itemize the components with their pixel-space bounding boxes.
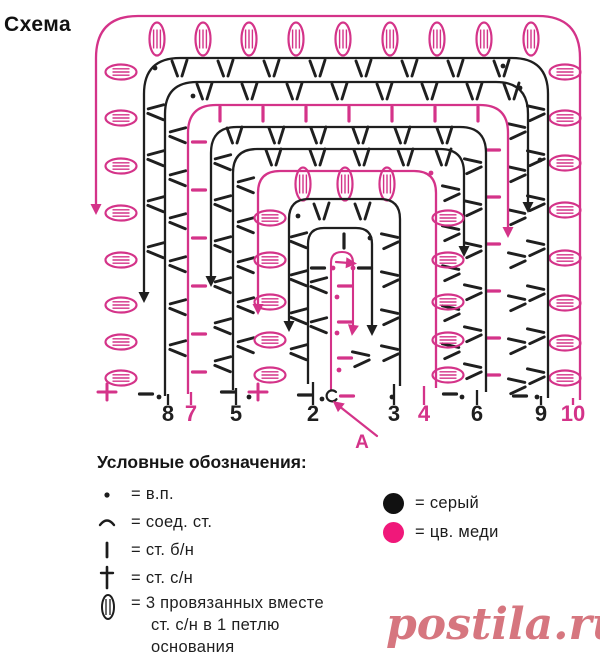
round-number-8: 8 (162, 401, 174, 426)
cluster-icon (97, 592, 131, 622)
round-number-4: 4 (418, 401, 431, 426)
legend: Условные обозначения: = в.п. = соед. ст.… (97, 452, 397, 658)
legend-item-cluster: = 3 провязанных вместе ст. с/н в 1 петлю… (97, 592, 397, 658)
legend-item-label: = ст. с/н (131, 569, 193, 588)
copper-color-dot (383, 522, 404, 543)
start-label-a: А (329, 397, 377, 453)
double-crochet-icon (97, 565, 131, 591)
round-number-9: 9 (535, 401, 547, 426)
legend-item-label: = в.п. (131, 485, 174, 504)
chain-dot-icon (97, 481, 131, 507)
single-crochet-icon (97, 537, 131, 563)
round-number-10: 10 (561, 401, 585, 426)
round-number-2: 2 (307, 401, 319, 426)
slip-stitch-mark (327, 390, 337, 401)
color-key: = серый = цв. меди (383, 489, 499, 547)
legend-item-double-crochet: = ст. с/н (97, 564, 397, 592)
legend-item-label: = ст. б/н (131, 541, 194, 560)
color-key-gray: = серый (383, 489, 499, 518)
slip-stitch-icon (97, 509, 131, 535)
gray-color-dot (383, 493, 404, 514)
legend-item-label: = соед. ст. (131, 513, 212, 532)
center-start-motif (331, 252, 359, 390)
legend-header: Условные обозначения: (97, 452, 397, 473)
round-number-3: 3 (388, 401, 400, 426)
round-4 (253, 168, 464, 406)
a-label: А (355, 432, 369, 453)
round-number-6: 6 (471, 401, 483, 426)
round-numbers: 8752346910 (162, 401, 585, 426)
legend-item-chain: = в.п. (97, 480, 397, 508)
round-number-7: 7 (185, 401, 197, 426)
crochet-scheme-page: Схема 8752346910А Условные обозначения: … (0, 0, 600, 671)
color-key-copper: = цв. меди (383, 518, 499, 547)
round-3 (284, 199, 401, 405)
legend-item-slip-stitch: = соед. ст. (97, 508, 397, 536)
watermark-postila: postila.ru (386, 599, 600, 650)
legend-item-single-crochet: = ст. б/н (97, 536, 397, 564)
legend-item-label: = 3 провязанных вместе ст. с/н в 1 петлю… (131, 592, 324, 658)
round-2 (308, 228, 378, 405)
round-number-5: 5 (230, 401, 242, 426)
